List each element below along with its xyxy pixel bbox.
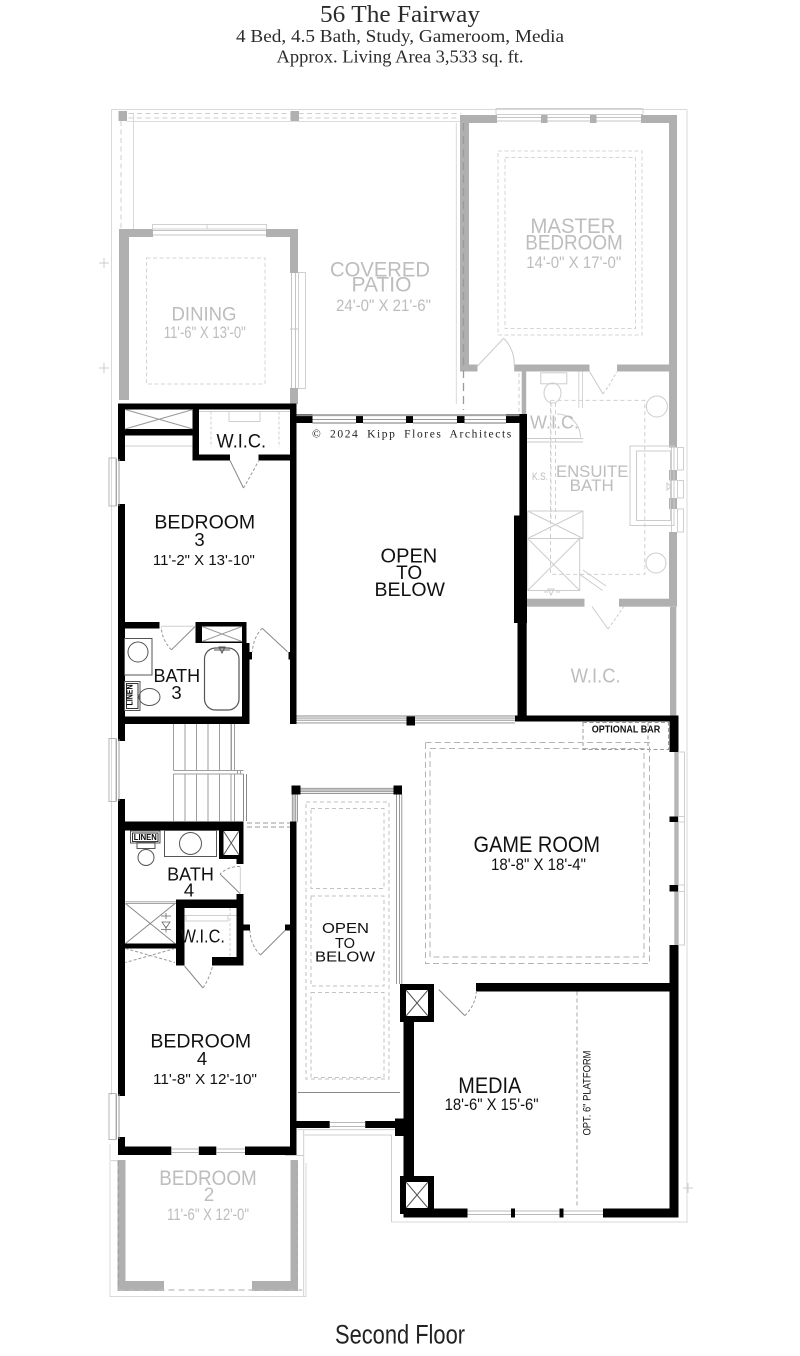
svg-text:3: 3 <box>171 682 181 703</box>
svg-text:LINEN: LINEN <box>134 832 157 842</box>
svg-text:OPT. 6" PLATFORM: OPT. 6" PLATFORM <box>582 1051 594 1136</box>
svg-text:24'-0" X 21'-6": 24'-0" X 21'-6" <box>336 296 431 315</box>
svg-text:4: 4 <box>184 880 194 901</box>
svg-text:W.I.C.: W.I.C. <box>530 413 579 433</box>
svg-text:11'-6" X 13'-0": 11'-6" X 13'-0" <box>164 323 246 342</box>
svg-text:BEDROOM: BEDROOM <box>525 232 623 255</box>
svg-text:W.I.C.: W.I.C. <box>217 430 267 452</box>
svg-text:4: 4 <box>197 1048 207 1069</box>
svg-text:18'-6" X 15'-6": 18'-6" X 15'-6" <box>445 1095 539 1114</box>
svg-text:Approx. Living Area 3,533 sq.: Approx. Living Area 3,533 sq. ft. <box>277 46 524 66</box>
svg-text:K.S.: K.S. <box>532 471 548 483</box>
svg-text:GAME ROOM: GAME ROOM <box>474 832 601 857</box>
svg-text:© 2024 Kipp Flores Architects: © 2024 Kipp Flores Architects <box>312 429 513 441</box>
svg-text:3: 3 <box>194 529 204 550</box>
svg-text:BEDROOM: BEDROOM <box>154 512 255 534</box>
svg-text:2: 2 <box>204 1185 215 1206</box>
svg-text:4 Bed, 4.5 Bath, Study, Gamero: 4 Bed, 4.5 Bath, Study, Gameroom, Media <box>236 26 564 46</box>
svg-text:LINEN: LINEN <box>126 684 135 705</box>
svg-text:18'-8" X 18'-4": 18'-8" X 18'-4" <box>491 855 586 874</box>
svg-text:Second Floor: Second Floor <box>335 1320 465 1350</box>
svg-text:BELOW: BELOW <box>374 579 445 601</box>
svg-text:W.I.C.: W.I.C. <box>180 927 225 947</box>
svg-text:BATH: BATH <box>570 476 614 495</box>
svg-text:PATIO: PATIO <box>352 273 412 297</box>
svg-text:BELOW: BELOW <box>315 950 375 966</box>
svg-text:11'-8" X 12'-10": 11'-8" X 12'-10" <box>153 1071 257 1088</box>
svg-text:11'-6" X 12'-0": 11'-6" X 12'-0" <box>167 1205 249 1224</box>
svg-text:OPEN: OPEN <box>322 921 369 937</box>
svg-text:56 The Fairway: 56 The Fairway <box>320 1 481 28</box>
svg-text:W.I.C.: W.I.C. <box>571 666 621 688</box>
svg-text:11'-2" X 13'-10": 11'-2" X 13'-10" <box>153 552 255 569</box>
svg-text:14'-0" X 17'-0": 14'-0" X 17'-0" <box>526 253 621 272</box>
svg-text:OPTIONAL BAR: OPTIONAL BAR <box>592 724 661 736</box>
